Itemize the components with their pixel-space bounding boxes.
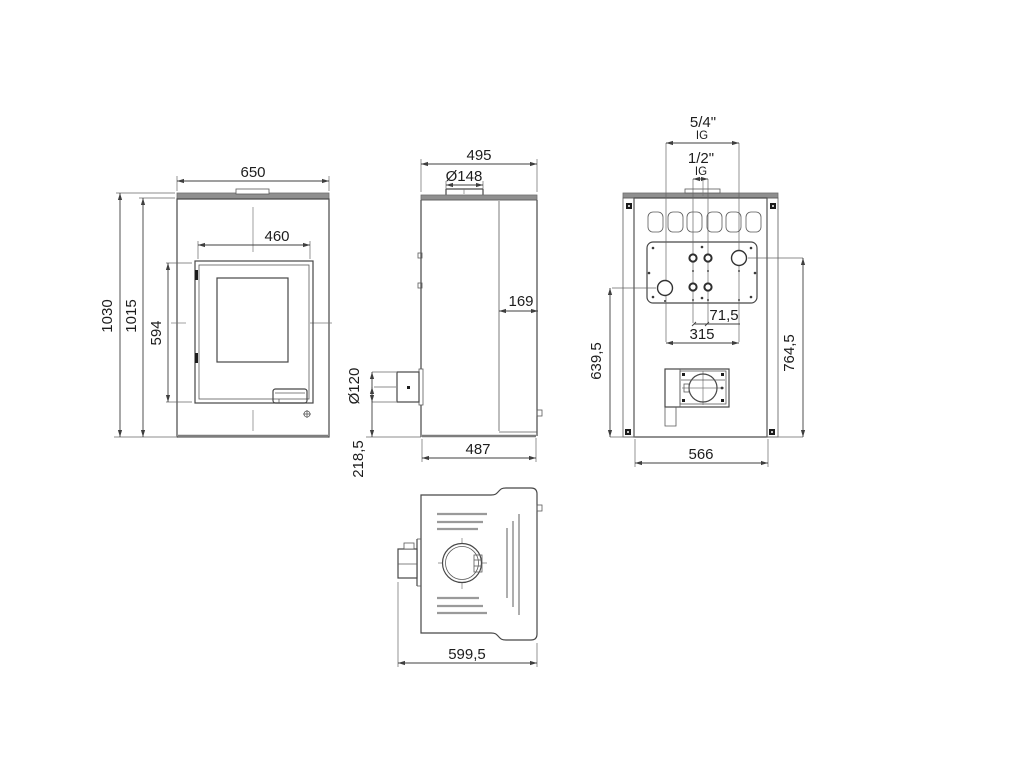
side-socket-height-dim: 218,5 [350, 440, 367, 478]
side-flue-collar [446, 189, 483, 195]
side-depth-dim: 495 [466, 147, 491, 164]
boiler-spacing-dim: 315 [689, 326, 714, 343]
back-top-plate-bump [685, 189, 720, 193]
front-glass-height-dim: 594 [148, 320, 165, 345]
side-flue-diameter-dim: Ø148 [446, 168, 483, 185]
side-front-gap-dim: 169 [508, 293, 533, 310]
technical-drawing-canvas: 650 460 594 1030 1015 [0, 0, 1024, 768]
side-socket [397, 369, 423, 405]
top-depth-dim: 599,5 [448, 646, 486, 663]
stove-dimension-drawing: 650 460 594 1030 1015 [0, 0, 1024, 768]
tapping-height-right-dim: 764,5 [781, 334, 798, 372]
boiler-thread-label: 5/4" [690, 114, 716, 131]
sensor-thread-label: 1/2" [688, 150, 714, 167]
sensor-tapping [689, 254, 696, 261]
front-width-dim: 650 [240, 164, 265, 181]
boiler-tapping [658, 281, 673, 296]
top-view: 599,5 [398, 488, 542, 667]
top-rear-tab [537, 505, 542, 511]
sensor-tapping [704, 254, 711, 261]
back-side-strip-left [623, 198, 634, 437]
front-view: 650 460 594 1030 1015 [99, 164, 332, 437]
back-view: 5/4" IG 1/2" IG 71,5 315 [588, 114, 803, 467]
side-base-depth-dim: 487 [465, 441, 490, 458]
sensor-tapping [704, 283, 711, 290]
side-body [418, 200, 542, 437]
front-total-height-dim: 1030 [99, 299, 116, 332]
tapping-height-left-dim: 639,5 [588, 342, 605, 380]
back-width-dim: 566 [688, 446, 713, 463]
sensor-thread-type-label: IG [695, 166, 707, 178]
sensor-spacing-dim: 71,5 [709, 307, 738, 324]
back-top-plate [623, 193, 778, 198]
front-body-height-dim: 1015 [123, 299, 140, 332]
boiler-tapping [732, 251, 747, 266]
boiler-thread-type-label: IG [696, 130, 708, 142]
side-top-plate [421, 195, 537, 200]
side-socket-diameter-dim: Ø120 [346, 368, 363, 405]
front-door-width-dim: 460 [264, 228, 289, 245]
side-rear-tab [537, 410, 542, 416]
front-hinge-bottom [195, 353, 198, 363]
side-view: 495 Ø148 169 Ø120 218,5 487 [346, 147, 542, 478]
sensor-tapping [689, 283, 696, 290]
front-hinge-top [195, 270, 198, 280]
front-top-plate-bump [236, 189, 269, 194]
back-side-strip-right [767, 198, 778, 437]
top-socket [398, 539, 421, 586]
